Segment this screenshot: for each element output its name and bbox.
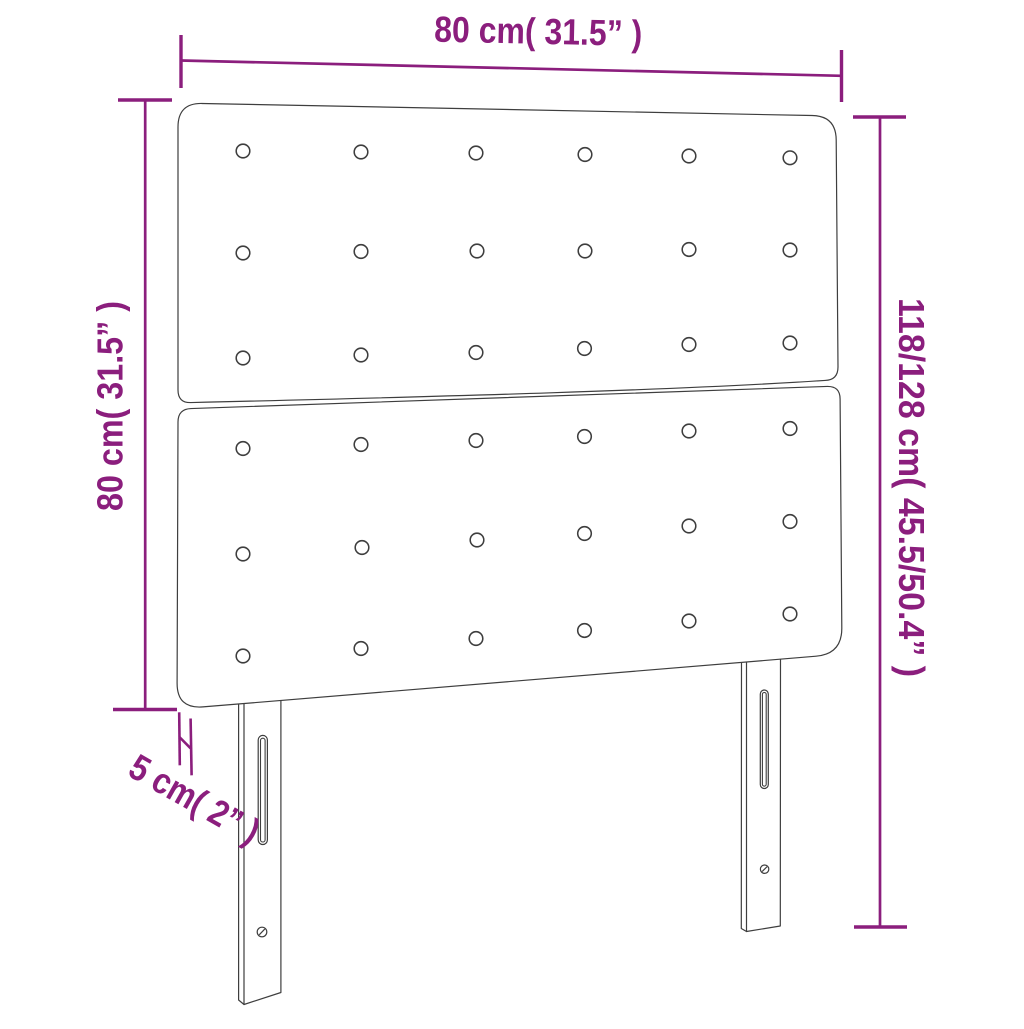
svg-text:80 cm( 31.5” ): 80 cm( 31.5” ) [90,301,131,511]
svg-text:80 cm( 31.5” ): 80 cm( 31.5” ) [434,9,643,54]
svg-text:118/128 cm( 45.5/50.4” ): 118/128 cm( 45.5/50.4” ) [891,298,932,677]
